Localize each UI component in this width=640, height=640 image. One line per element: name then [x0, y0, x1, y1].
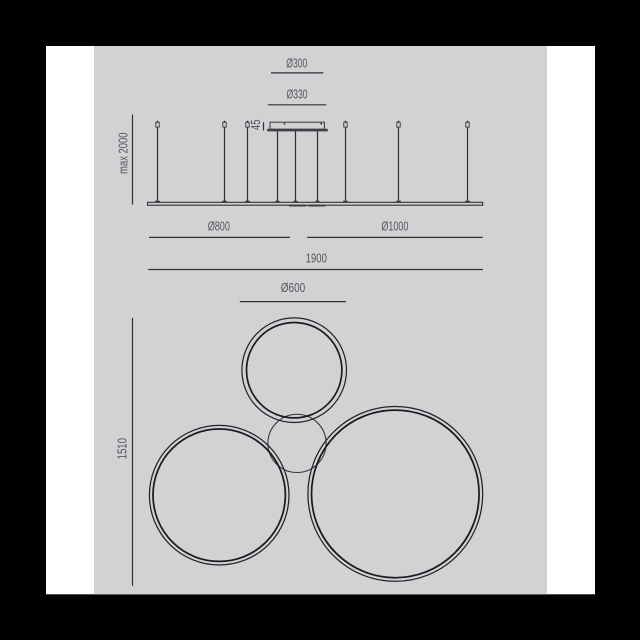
- svg-text:Ø300: Ø300: [286, 57, 307, 71]
- svg-text:max 2000: max 2000: [116, 133, 130, 174]
- svg-text:1900: 1900: [306, 252, 327, 266]
- svg-text:Ø800: Ø800: [208, 220, 230, 234]
- svg-text:1510: 1510: [115, 438, 129, 459]
- svg-text:Ø600: Ø600: [281, 281, 306, 295]
- svg-text:Ø330: Ø330: [287, 87, 308, 101]
- svg-text:Ø1000: Ø1000: [381, 220, 408, 234]
- svg-text:45: 45: [249, 119, 263, 130]
